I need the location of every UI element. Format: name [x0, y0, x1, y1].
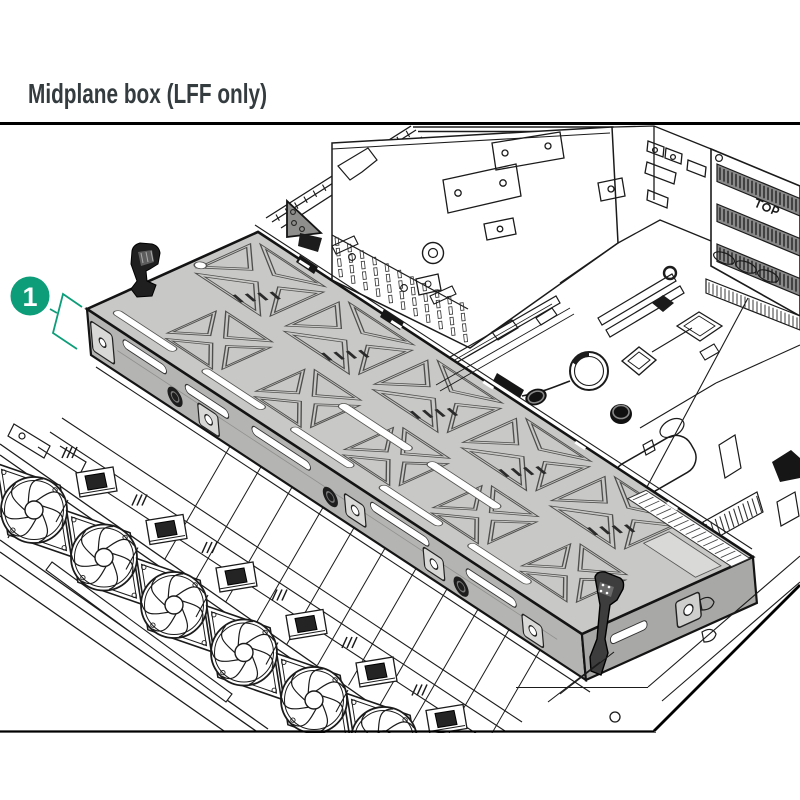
svg-text:1: 1 [22, 282, 37, 312]
svg-text:Midplane box (LFF only): Midplane box (LFF only) [28, 78, 267, 109]
